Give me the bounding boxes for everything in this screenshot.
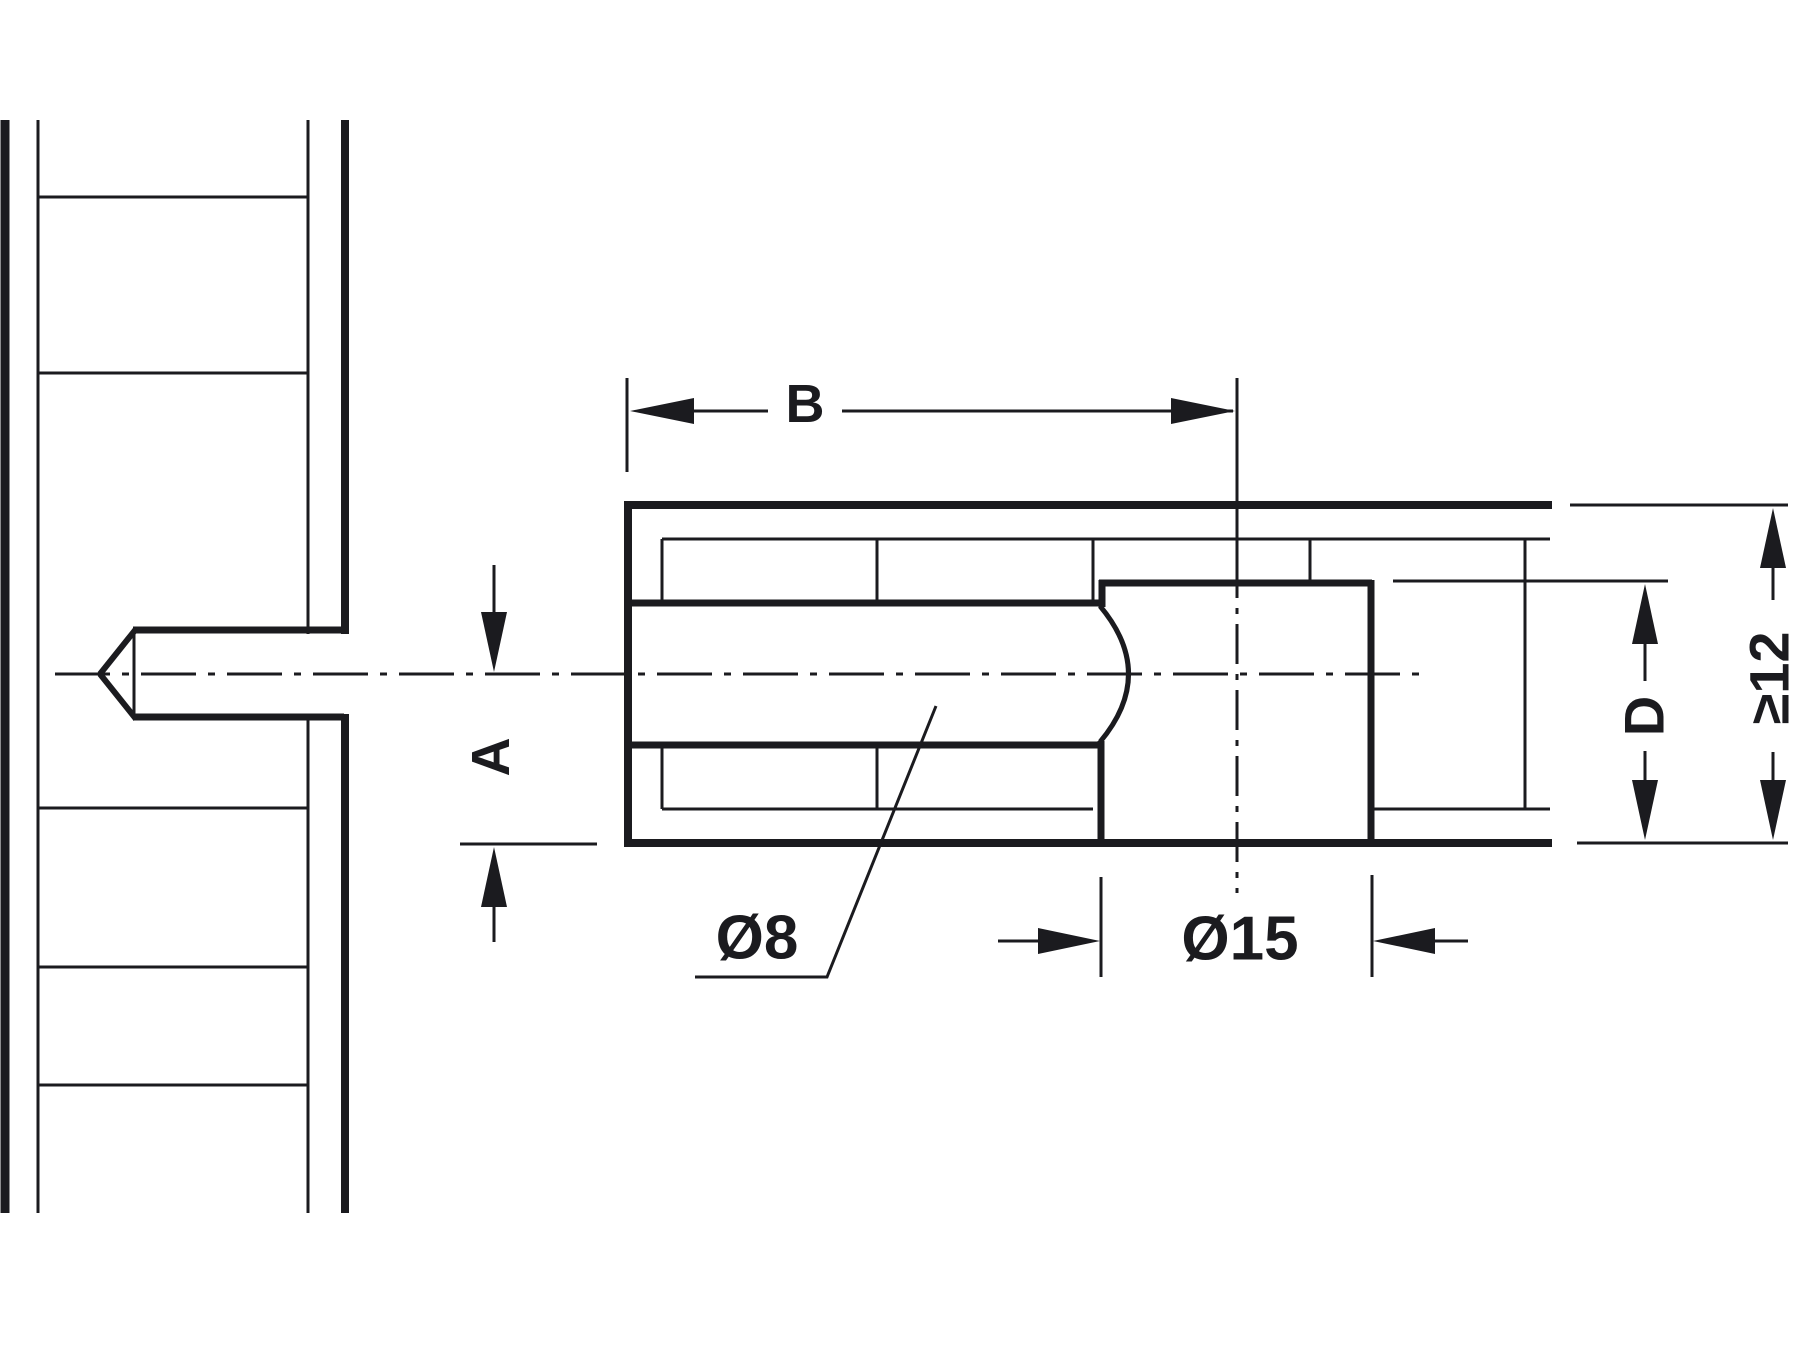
dim-label-d: D <box>1613 696 1676 736</box>
dim-d: D <box>1393 581 1676 840</box>
dim-dia15: Ø15 <box>998 875 1468 977</box>
dim-min-thickness: ≥12 <box>1570 505 1800 843</box>
dim-label-dia15: Ø15 <box>1181 905 1298 974</box>
dim-a: A <box>460 565 597 942</box>
dim-b: B <box>627 374 1235 472</box>
dim-ge12-arrowhead-down <box>1760 780 1786 840</box>
dim-b-arrowhead-left <box>630 398 694 424</box>
dim-d-arrowhead-down <box>1632 780 1658 840</box>
dim-label-min-thickness: ≥12 <box>1738 631 1800 724</box>
dim-label-b: B <box>786 374 825 434</box>
dim-ge12-arrowhead-up <box>1760 508 1786 568</box>
technical-drawing-page: B A D ≥12 <box>0 0 1800 1350</box>
dim-a-arrowhead-down <box>481 612 507 672</box>
dim-label-a: A <box>461 738 521 777</box>
dim-dia15-arrowhead-right <box>1038 928 1100 954</box>
dim-b-arrowhead-right <box>1171 398 1235 424</box>
dim-dia15-arrowhead-left <box>1373 928 1435 954</box>
dim-d-arrowhead-up <box>1632 584 1658 644</box>
dim-a-arrowhead-up <box>481 847 507 907</box>
connector-drilling-diagram: B A D ≥12 <box>0 0 1800 1350</box>
dim-label-dia8: Ø8 <box>716 904 799 973</box>
